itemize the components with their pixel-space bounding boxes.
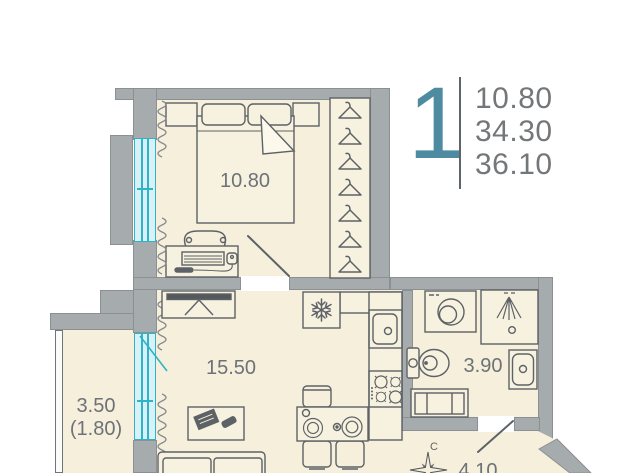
pillow [248,104,291,125]
compass-rose: C [410,441,447,473]
area-figures: 10.80 34.30 36.10 [475,82,553,181]
bedroom-door-leaf [248,236,289,276]
compass-main-points [410,452,447,473]
radiator [158,101,166,471]
balcony-door-swing [140,336,167,371]
cup-dot [336,426,338,428]
toilet [407,348,449,378]
balcony-reduced-area-label: (1.80) [60,418,132,441]
info-divider [459,77,461,189]
desk-item [175,268,193,272]
bedroom-area-label: 10.80 [213,170,277,193]
bath-bench [411,389,468,417]
living-area-label: 15.50 [199,357,263,380]
wardrobe [330,98,370,278]
living-area-total: 10.80 [475,82,553,115]
hallway-area-label: 4.10 [450,460,506,473]
compass-north-label: C [430,441,438,453]
washbasin [509,350,537,389]
dining-chair [303,386,331,407]
bathroom-door-leaf [478,421,513,452]
total-area: 36.10 [475,148,553,181]
rooms-count: 1 [408,72,458,174]
desk-chair [185,231,226,247]
washing-machine [425,291,476,332]
nightstand-right [293,103,319,126]
bathroom-area-label: 3.90 [455,355,511,378]
tv-screen [167,294,231,300]
apartment-area: 34.30 [475,115,553,148]
floorplan: C 10.80 15.50 3.90 3.50 (1.80) 4.10 1 10… [0,0,640,473]
pillow [202,104,245,125]
dining-chair [336,441,364,467]
balcony-area-label: 3.50 [64,395,128,418]
dining-chair [303,441,331,467]
nightstand-left [166,103,197,126]
